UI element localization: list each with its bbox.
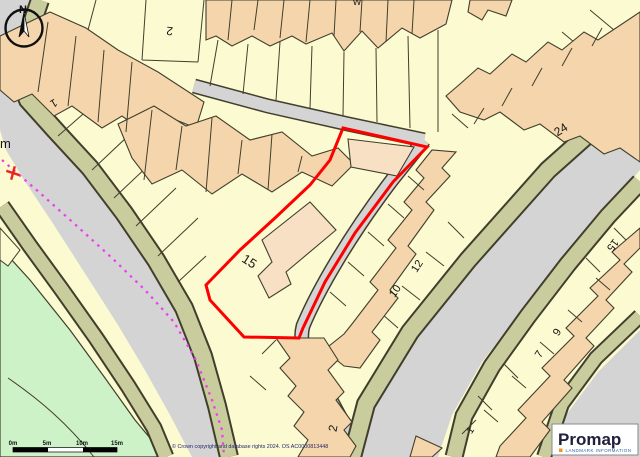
map-viewport[interactable]: 1 2 15 10 12 24 15 9 7 1 2 m W N 0m 5m 1… — [0, 0, 640, 457]
os-map: 1 2 15 10 12 24 15 9 7 1 2 m W N 0m 5m 1… — [0, 0, 640, 457]
promap-logo: Promap LANDMARK INFORMATION — [552, 424, 638, 455]
copyright-text: © Crown copyright and database rights 20… — [172, 443, 328, 450]
compass-north-label: N — [19, 4, 27, 16]
street-name-fragment: m — [0, 136, 11, 151]
scale-tick-label: 15m — [111, 441, 123, 447]
scale-tick-label: 0m — [9, 441, 18, 447]
promap-brand-text: Promap — [558, 430, 621, 449]
clipped-label-fragment: W — [353, 0, 362, 7]
scale-tick-label: 10m — [76, 441, 88, 447]
landmark-tagline-text: LANDMARK INFORMATION — [566, 448, 632, 453]
scale-tick-label: 5m — [43, 441, 52, 447]
landmark-mark-icon — [559, 449, 563, 453]
